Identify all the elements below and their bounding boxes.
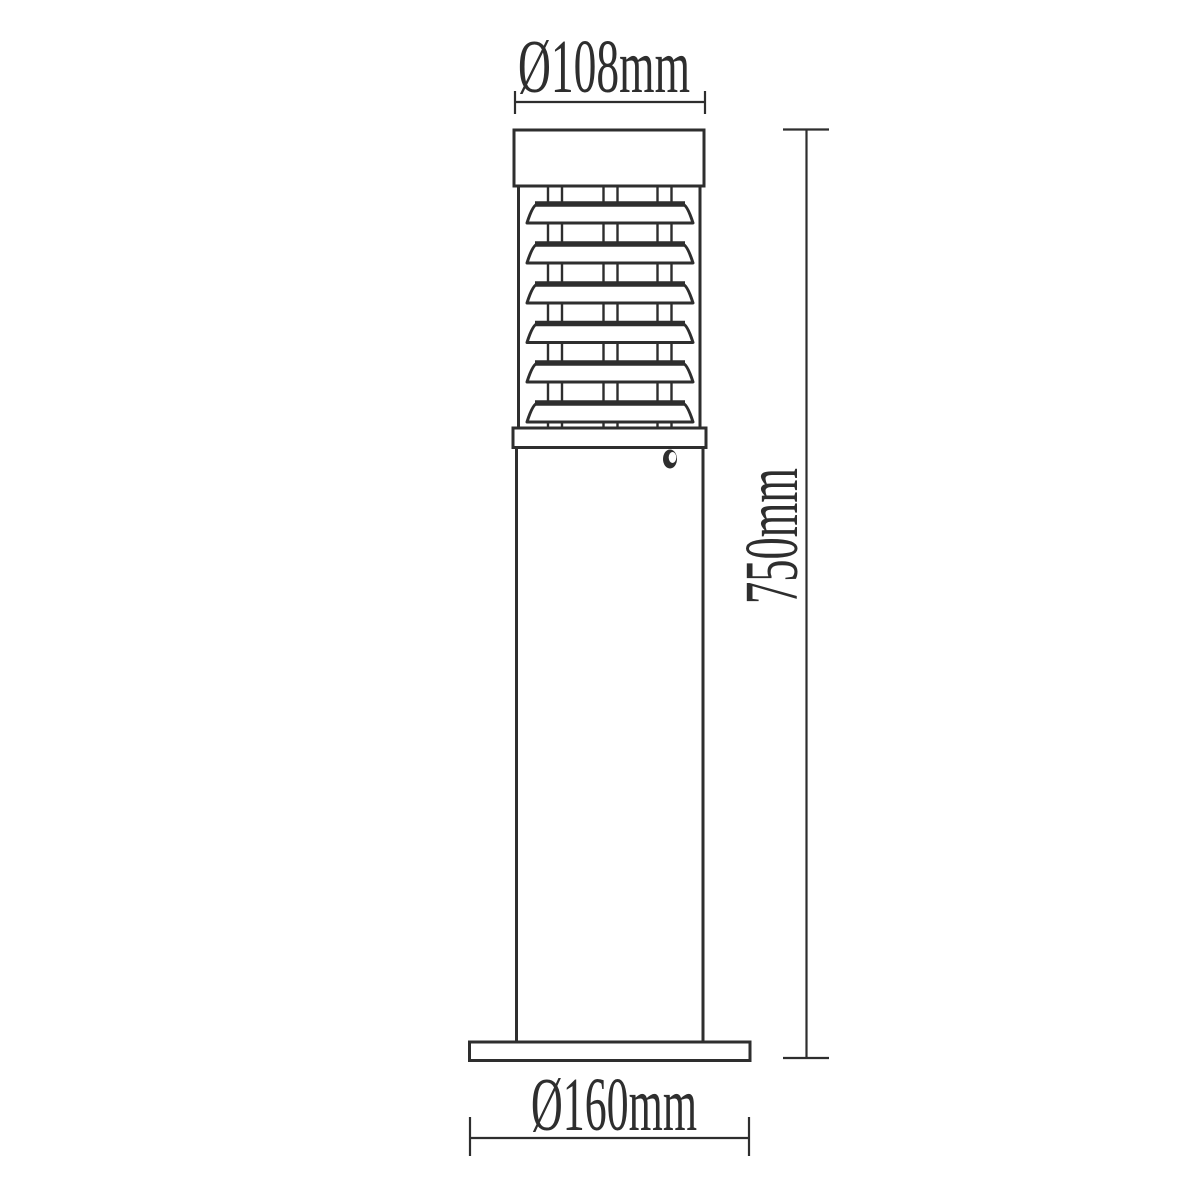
top-diameter-dimension: Ø108mm	[515, 25, 705, 114]
screw-icon	[663, 450, 677, 469]
height-label: 750mm	[730, 468, 814, 604]
lamp-collar	[513, 428, 706, 448]
top-diameter-label: Ø108mm	[518, 25, 690, 109]
lamp-body	[517, 448, 704, 1043]
bollard-light-dimension-drawing: Ø108mm	[0, 0, 1200, 1200]
louver-grille	[519, 185, 701, 428]
louver-slat-6	[527, 403, 693, 422]
louver-slat-5	[527, 363, 693, 382]
base-diameter-label: Ø160mm	[531, 1063, 697, 1147]
louver-slat-1	[527, 204, 693, 223]
technical-drawing-svg: Ø108mm	[0, 0, 1200, 1200]
lamp-base	[470, 1042, 751, 1061]
lamp-cap	[514, 130, 704, 186]
lamp-fixture	[470, 130, 751, 1061]
louver-slat-3	[527, 284, 693, 303]
height-dimension: 750mm	[730, 130, 829, 1059]
louver-slat-2	[527, 244, 693, 263]
louver-slat-4	[527, 324, 693, 343]
base-diameter-dimension: Ø160mm	[470, 1063, 749, 1156]
